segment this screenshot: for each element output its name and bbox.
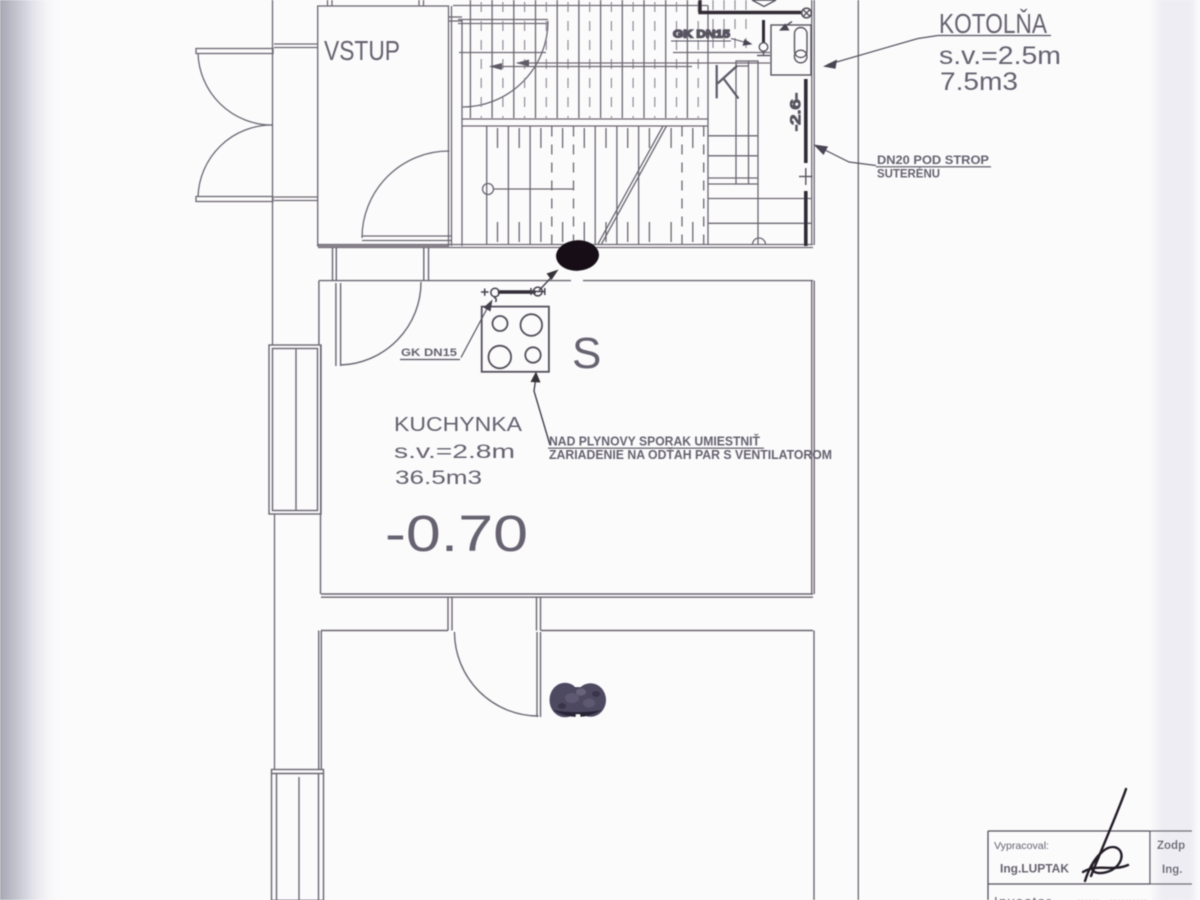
svg-text:KOTOLŇA: KOTOLŇA: [939, 8, 1047, 39]
svg-text:Ing.: Ing.: [1162, 864, 1182, 876]
svg-text:SUTERÉNU: SUTERÉNU: [877, 166, 940, 181]
svg-text:DN20 POD STROP: DN20 POD STROP: [877, 153, 989, 167]
svg-text:7.5m3: 7.5m3: [940, 68, 1018, 96]
svg-text:Zodp: Zodp: [1157, 840, 1185, 852]
svg-text:GK DN15: GK DN15: [673, 29, 730, 41]
svg-text:36.5m3: 36.5m3: [395, 468, 482, 489]
svg-text:ZARIADENIE NA ODŤAH PAR S: ZARIADENIE NA ODŤAH PAR S VENTILATOROM: [549, 447, 832, 462]
svg-text:VSTUP: VSTUP: [324, 35, 400, 66]
svg-text:Investor: Investor: [994, 894, 1052, 900]
svg-text:KUCHYNKA: KUCHYNKA: [394, 414, 523, 436]
svg-text:NAD PLYNOVY SPORAK UMIESTNI: NAD PLYNOVY SPORAK UMIESTNIŤ: [549, 434, 760, 449]
svg-text:Ing.LUPTAK: Ing.LUPTAK: [1000, 864, 1070, 876]
svg-text:Vypracoval:: Vypracoval:: [994, 840, 1049, 852]
svg-text:s.v.=2.5m: s.v.=2.5m: [939, 42, 1061, 70]
svg-text:s.v.=2.8m: s.v.=2.8m: [394, 442, 515, 463]
svg-text:GK DN15: GK DN15: [401, 347, 457, 359]
svg-text:S: S: [572, 329, 601, 378]
svg-text:-2.6-: -2.6-: [788, 93, 803, 131]
svg-text:-0.70: -0.70: [385, 505, 528, 562]
